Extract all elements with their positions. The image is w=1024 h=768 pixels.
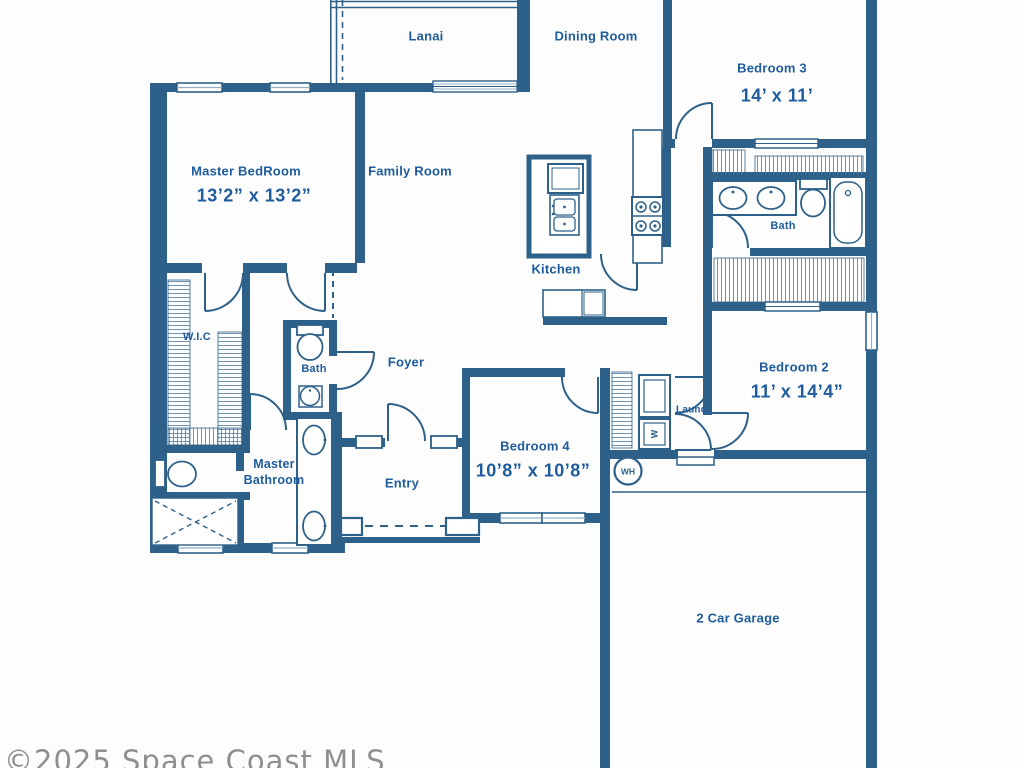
dryer-icon xyxy=(639,375,670,417)
laundry-fixtures: W xyxy=(639,375,670,449)
door-half-bath xyxy=(337,352,374,389)
room-dims-bedroom3: 14’ x 11’ xyxy=(741,86,814,107)
room-label-bedroom3: Bedroom 3 xyxy=(737,61,807,76)
sliding-door-lanai xyxy=(433,81,517,92)
water-heater-icon: WH xyxy=(615,458,642,485)
toilet-icon xyxy=(800,179,827,217)
closet-doors-bedroom2 xyxy=(765,302,820,311)
garage-elements: WH xyxy=(612,458,866,493)
door-bedroom3 xyxy=(676,103,712,139)
room-label-bath-half: Bath xyxy=(301,363,326,375)
garage-door-threshold xyxy=(677,457,714,465)
window-master-rear xyxy=(177,83,222,92)
floorplan-drawing: W WH xyxy=(0,0,1024,768)
room-label-garage: 2 Car Garage xyxy=(696,611,779,626)
room-label-foyer: Foyer xyxy=(388,355,424,370)
room-dims-bedroom2: 11’ x 14’4” xyxy=(751,382,844,403)
sink-icon xyxy=(303,426,325,455)
room-label-lanai: Lanai xyxy=(409,29,444,44)
floorplan-page: W WH Lanai Dining Room Bedroom 3 14’ x 1… xyxy=(0,0,1024,768)
pedestal-sink-icon xyxy=(299,386,322,407)
room-label-dining: Dining Room xyxy=(554,29,637,44)
stove-icon xyxy=(632,197,663,235)
door-master-hall xyxy=(287,273,325,311)
room-label-master-bathroom: Master Bathroom xyxy=(244,456,305,489)
kitchen-fixtures xyxy=(529,130,663,317)
door-front xyxy=(388,404,425,441)
room-label-master-bathroom-line1: Master xyxy=(253,457,295,471)
room-label-laundry: Laund. xyxy=(676,405,710,416)
refrigerator-icon xyxy=(548,164,583,193)
room-label-bedroom2: Bedroom 2 xyxy=(759,360,829,375)
room-label-master-bathroom-line2: Bathroom xyxy=(244,473,305,487)
kitchen-lower-counter xyxy=(543,290,605,317)
window-bedroom2 xyxy=(866,312,877,350)
water-heater-label: WH xyxy=(621,467,635,477)
front-door-jambs xyxy=(356,436,457,448)
shower-icon xyxy=(152,498,238,545)
room-dims-master-bedroom: 13’2” x 13’2” xyxy=(197,186,312,207)
door-master-bath xyxy=(250,394,286,430)
room-label-bath-main: Bath xyxy=(770,220,795,232)
door-wic xyxy=(205,273,243,311)
door-kitchen-hall xyxy=(601,254,637,290)
mls-watermark: ©2025 Space Coast MLS xyxy=(4,744,386,768)
window-bedroom4-2 xyxy=(542,513,585,523)
toilet-icon xyxy=(297,325,323,360)
door-laundry-lower xyxy=(675,414,711,450)
room-label-kitchen: Kitchen xyxy=(531,262,580,277)
bathtub-icon xyxy=(830,177,866,248)
window-bedroom4-1 xyxy=(500,513,542,523)
bath-main-fixtures xyxy=(712,177,866,248)
toilet-icon xyxy=(155,460,196,487)
sink-icon xyxy=(303,512,325,541)
room-label-family: Family Room xyxy=(368,164,452,179)
door-bedroom4 xyxy=(562,377,598,413)
room-label-master-bedroom: Master BedRoom xyxy=(191,164,301,179)
room-dims-bedroom4: 10’8” x 10’8” xyxy=(476,461,591,482)
room-label-entry: Entry xyxy=(385,476,419,491)
closet-doors-bedroom3 xyxy=(755,139,818,148)
room-label-bedroom4: Bedroom 4 xyxy=(500,439,570,454)
room-label-wic: W.I.C xyxy=(183,331,211,343)
door-bath-main xyxy=(712,212,748,248)
window-master-rear-2 xyxy=(270,83,310,92)
door-bedroom2 xyxy=(712,413,748,449)
washer-label: W xyxy=(650,429,660,438)
